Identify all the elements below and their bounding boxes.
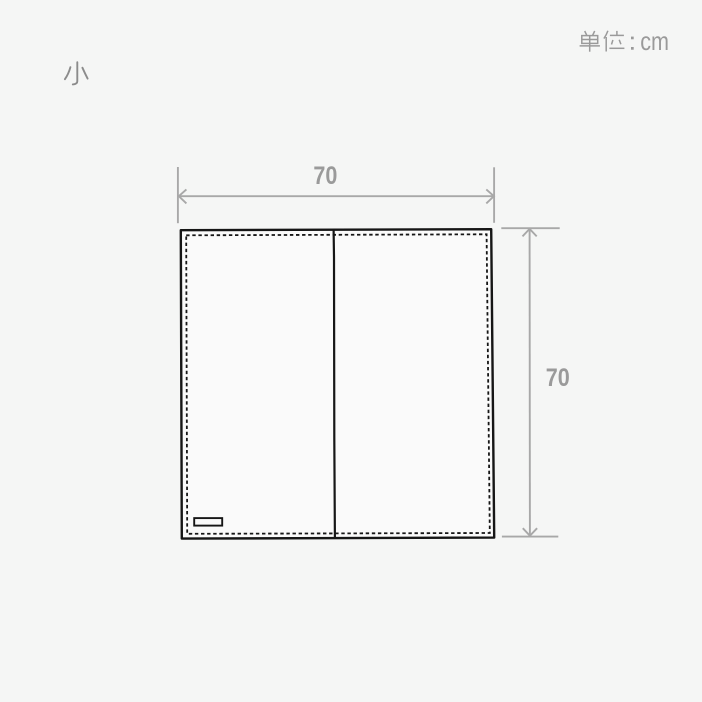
svg-text:cm: cm bbox=[640, 26, 669, 56]
svg-text:70: 70 bbox=[546, 364, 570, 392]
svg-text:70: 70 bbox=[313, 162, 337, 190]
